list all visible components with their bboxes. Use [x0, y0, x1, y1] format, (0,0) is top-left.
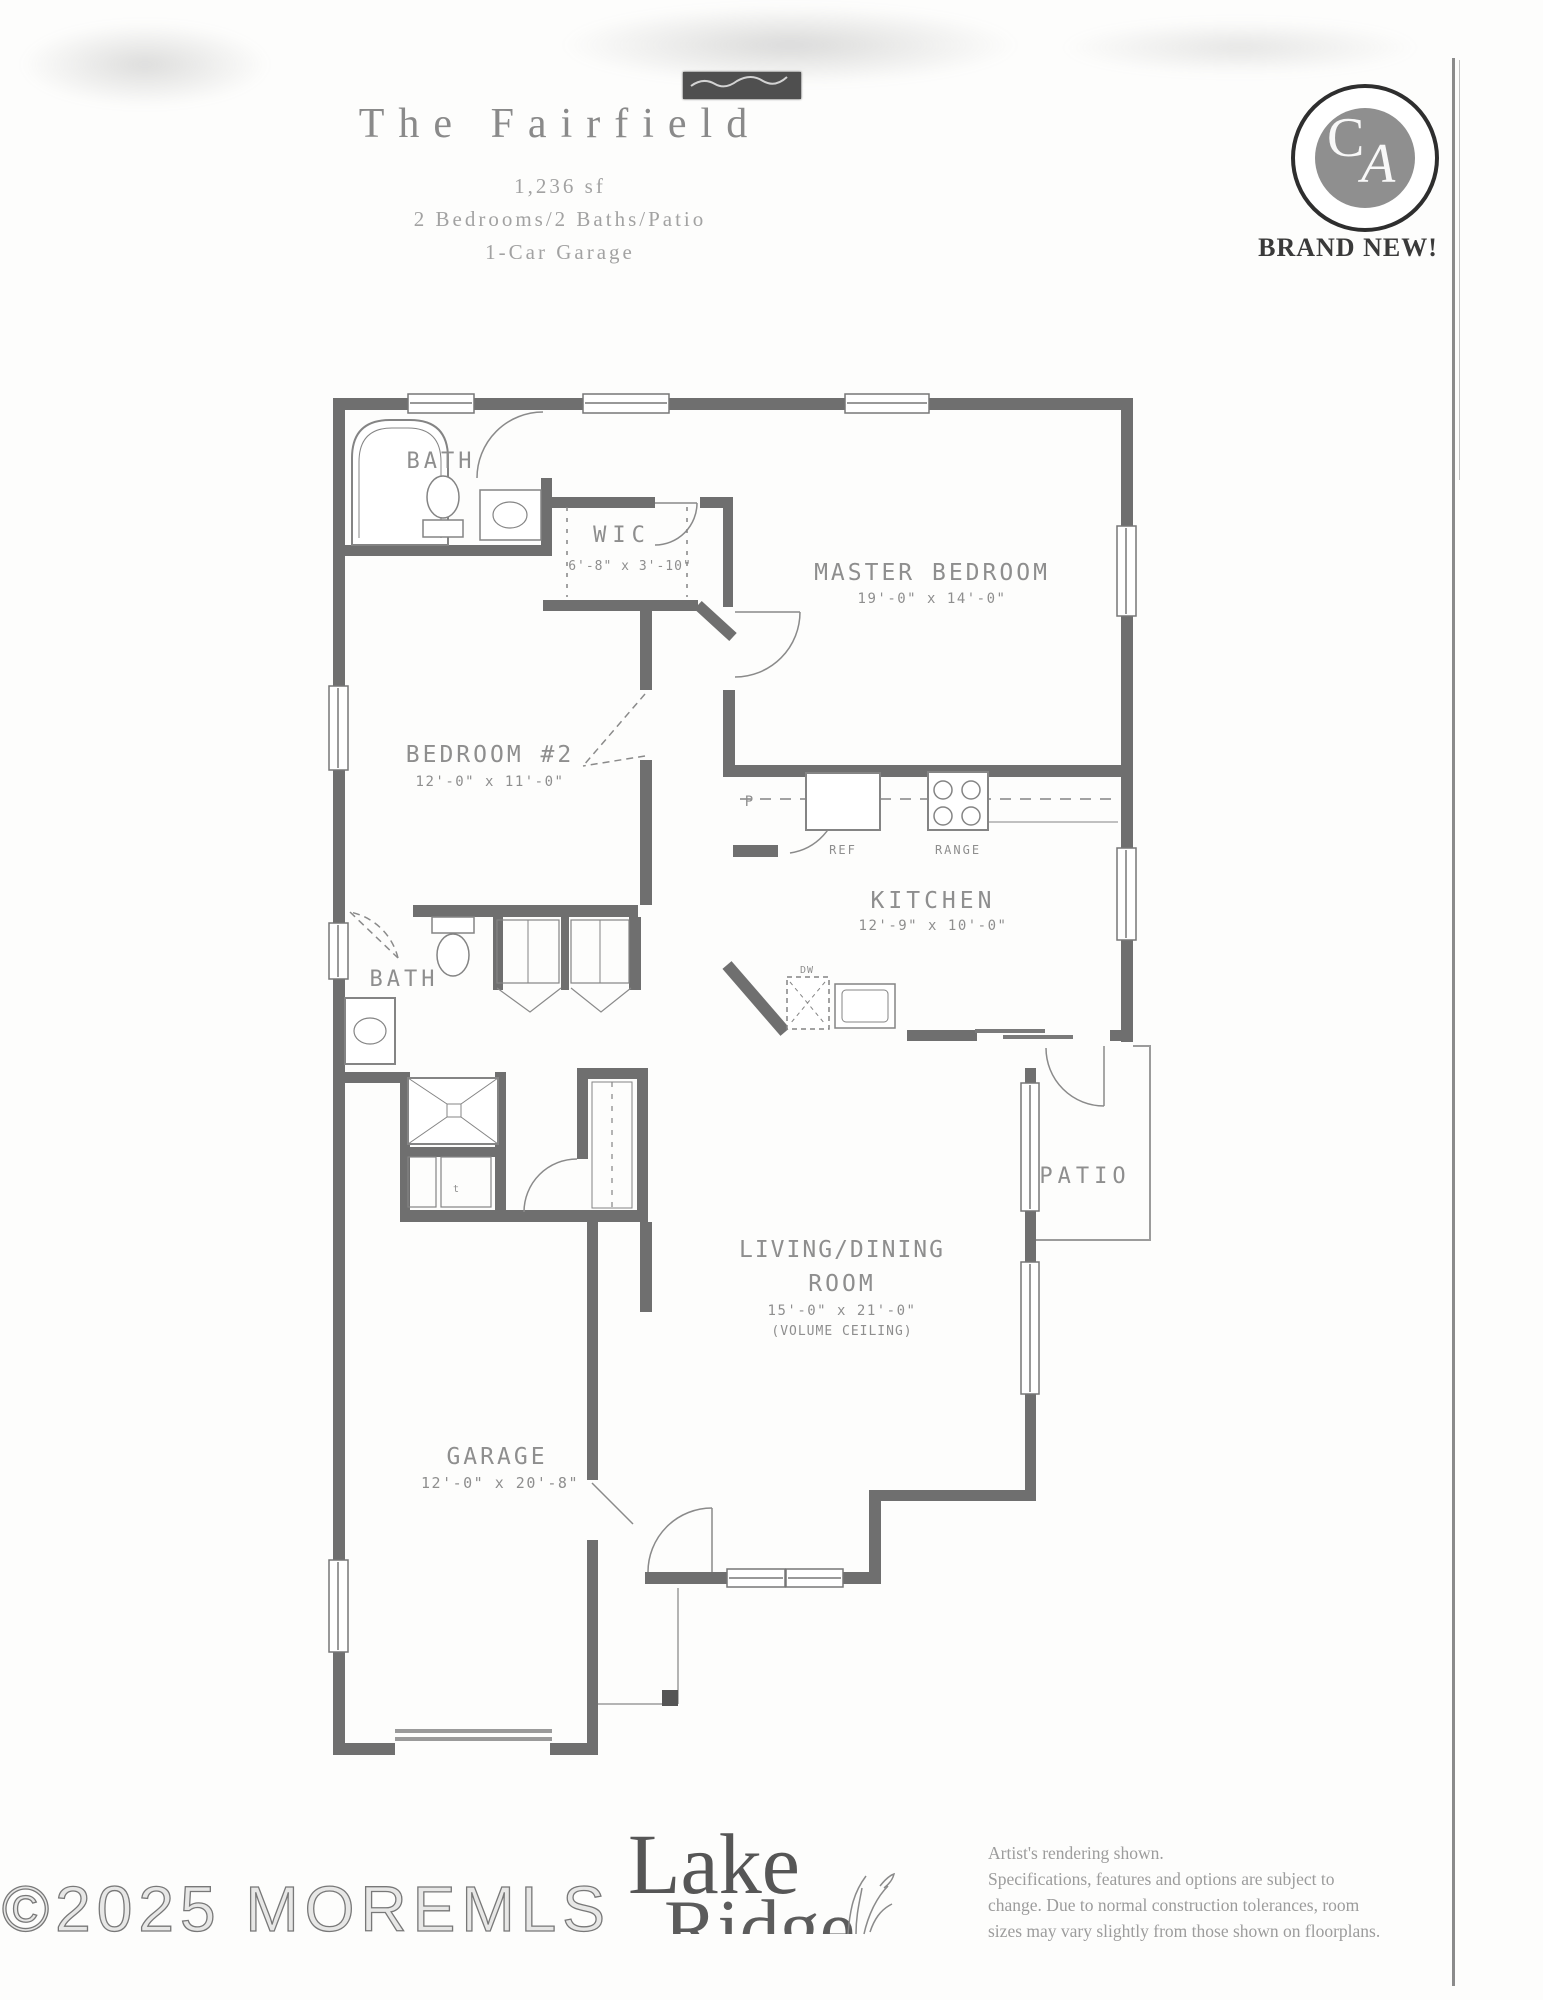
label-kitchen: KITCHEN	[871, 888, 996, 914]
label-bedroom2-dims: 12'-0" x 11'-0"	[416, 774, 565, 790]
label-master-bedroom: MASTER BEDROOM	[814, 560, 1050, 586]
label-master-bath: BATH	[407, 449, 476, 474]
label-master-bedroom-dims: 19'-0" x 14'-0"	[858, 591, 1007, 607]
label-pantry: P	[745, 794, 753, 810]
label-garage: GARAGE	[446, 1444, 547, 1470]
disclaimer-text: Artist's rendering shown. Specifications…	[988, 1840, 1440, 1944]
toilet	[427, 476, 459, 518]
garage-door	[395, 1729, 552, 1741]
label-living-dims: 15'-0" x 21'-0"	[768, 1303, 917, 1319]
label-volume-ceiling: (VOLUME CEILING)	[771, 1324, 912, 1339]
disclaimer-line: sizes may vary slightly from those shown…	[988, 1918, 1440, 1944]
label-wic-dims: 6'-8" x 3'-10"	[568, 559, 692, 574]
builder-logo: Lake Ridge	[628, 1824, 988, 1934]
label-bedroom2: BEDROOM #2	[406, 742, 574, 768]
disclaimer-line: Artist's rendering shown.	[988, 1840, 1440, 1866]
mls-watermark: ©2025 MOREMLS	[2, 1872, 611, 1946]
walls	[333, 398, 1133, 1755]
floorplan-drawing: BATH WIC 6'-8" x 3'-10" MASTER BEDROOM 1…	[0, 0, 1543, 2000]
scanned-floorplan-page: The Fairfield 1,236 sf 2 Bedrooms/2 Bath…	[0, 0, 1543, 2000]
sliding-door	[975, 1029, 1073, 1039]
refrigerator	[806, 773, 880, 830]
entry-stoop	[598, 1588, 678, 1706]
label-wic: WIC	[593, 523, 651, 548]
label-hall-bath: BATH	[370, 967, 439, 992]
label-water-heater: t	[453, 1184, 459, 1195]
label-refrigerator: REF	[829, 843, 857, 857]
label-kitchen-dims: 12'-9" x 10'-0"	[859, 918, 1008, 934]
toilet	[437, 934, 469, 976]
room-labels: BATH WIC 6'-8" x 3'-10" MASTER BEDROOM 1…	[370, 449, 1131, 1492]
label-living-dining-room: ROOM	[808, 1271, 875, 1297]
grass-sketch-icon	[818, 1858, 908, 1938]
label-dishwasher: DW	[800, 965, 814, 976]
label-range: RANGE	[935, 843, 981, 857]
label-living-dining: LIVING/DINING	[739, 1237, 945, 1263]
label-patio: PATIO	[1039, 1164, 1130, 1189]
disclaimer-line: change. Due to normal construction toler…	[988, 1892, 1440, 1918]
disclaimer-line: Specifications, features and options are…	[988, 1866, 1440, 1892]
label-garage-dims: 12'-0" x 20'-8"	[421, 1474, 579, 1492]
